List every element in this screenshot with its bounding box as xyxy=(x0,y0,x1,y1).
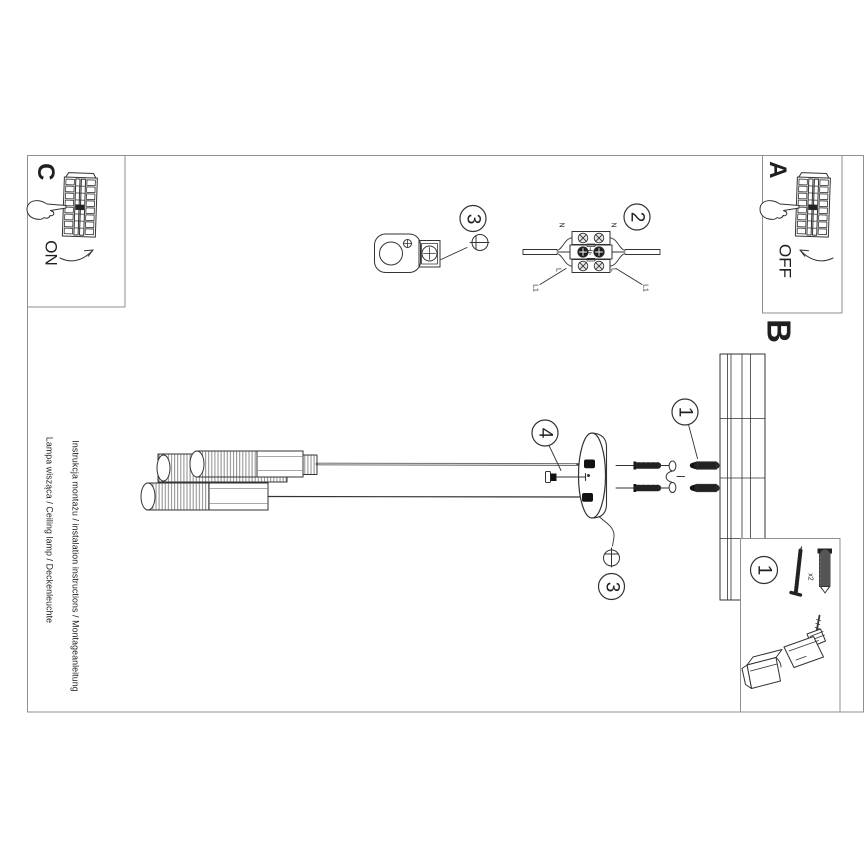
callout-3-bottom-number: 3 xyxy=(602,582,621,593)
wire-l1-left: L1 xyxy=(532,284,539,292)
parts-callout-number: 1 xyxy=(755,565,774,576)
sheet-title-line1: Instrukcja montażu / instalation instruc… xyxy=(71,440,80,691)
instruction-sheet: C ON A OFF B 3 2 4 1 3 1 N N L L L1 L1 x… xyxy=(0,0,868,868)
wire-l1-right: L1 xyxy=(642,284,649,292)
cord-grip-icon xyxy=(584,460,595,469)
callout-4-number: 4 xyxy=(536,428,555,439)
switch-off-label: OFF xyxy=(777,244,794,278)
sheet-title-line2: Lampa wisząca / Ceiling lamp / Deckenleu… xyxy=(45,437,54,623)
callout-2-number: 2 xyxy=(628,212,647,223)
lamp-shade-top xyxy=(190,451,317,477)
terminal-n-left: N xyxy=(558,222,565,227)
terminal-n-right: N xyxy=(610,222,617,227)
callout-1-number: 1 xyxy=(676,407,695,418)
terminal-l-right: L xyxy=(609,268,616,272)
step-a-label: A xyxy=(765,161,789,179)
cord-grip-icon xyxy=(582,493,593,502)
terminal-l-left: L xyxy=(555,268,562,272)
callout-3-top-number: 3 xyxy=(464,214,483,225)
wall-plug-part-icon xyxy=(818,549,833,594)
parts-qty-label: x2 xyxy=(807,573,814,580)
switch-on-label: ON xyxy=(43,240,60,266)
step-c-label: C xyxy=(33,163,57,181)
lamp-shade-bottom xyxy=(141,483,268,510)
step-b-label: B xyxy=(763,319,796,343)
diagram-canvas xyxy=(0,0,868,868)
